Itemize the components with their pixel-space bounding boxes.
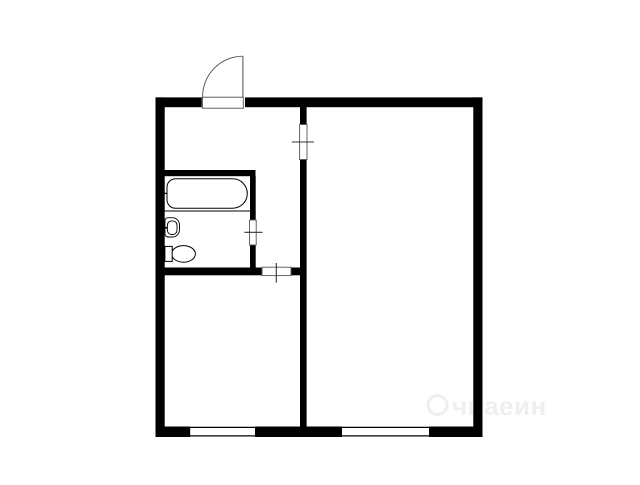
svg-text:чиаеин: чиаеин <box>452 391 547 421</box>
